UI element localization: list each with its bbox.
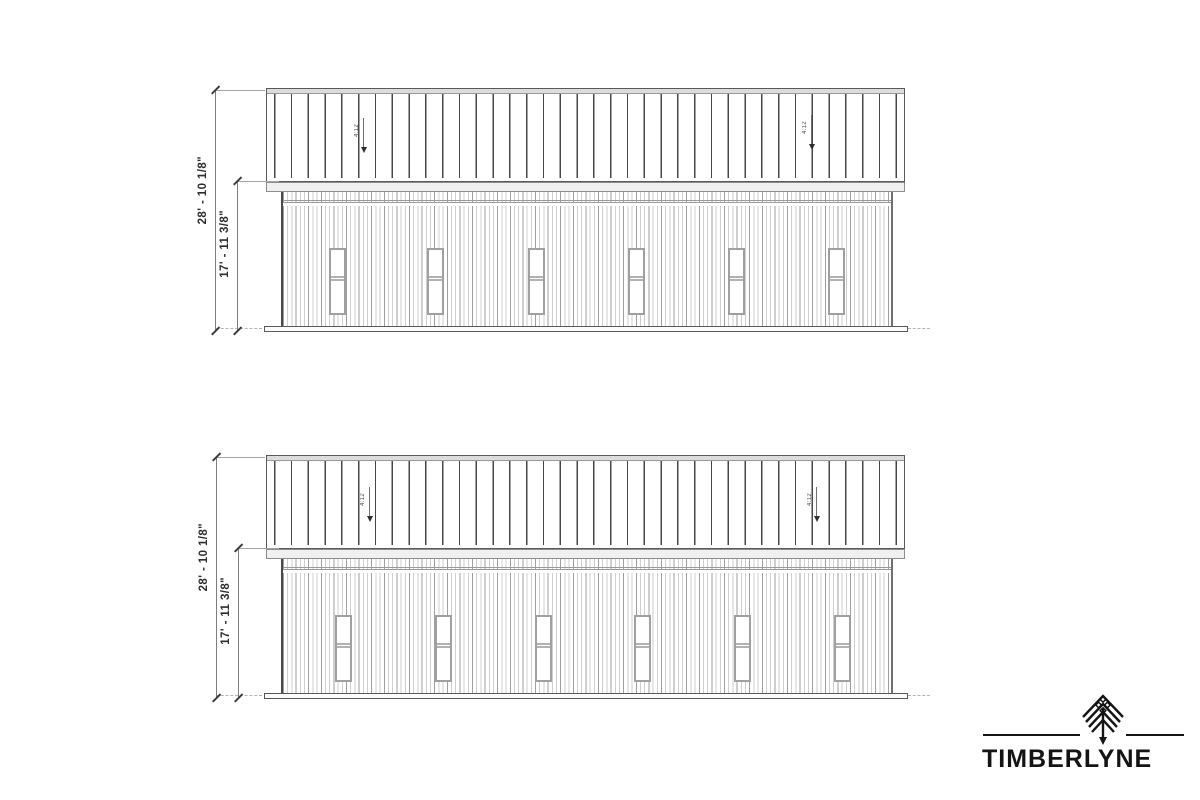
dimension-line-wall (237, 181, 238, 331)
window (628, 248, 645, 315)
window-sash-divider (636, 643, 649, 648)
window (329, 248, 346, 315)
wall-trim-band (283, 559, 891, 570)
window-sash-divider (836, 643, 849, 648)
extension-line-eave (237, 181, 279, 182)
window (734, 615, 751, 682)
eave-fascia (266, 549, 905, 559)
window (834, 615, 851, 682)
extension-line-eave (238, 548, 279, 549)
slope-text: 4:12 (354, 124, 360, 137)
dimension-line-overall (215, 90, 216, 331)
extension-line-roof-peak (215, 90, 265, 91)
window (634, 615, 651, 682)
window-sash-divider (730, 276, 743, 281)
window (728, 248, 745, 315)
slope-arrow-line (363, 118, 364, 148)
grade-line-right (908, 328, 930, 329)
window (828, 248, 845, 315)
slope-text: 4:12 (807, 493, 813, 506)
window-sash-divider (429, 276, 442, 281)
elevation-view-lower: 28' - 10 1/8" 17' - 11 3/8" 4:12 4:12 (0, 455, 1200, 715)
logo-wordmark: TIMBERLYNE (982, 745, 1152, 774)
dimension-tick (211, 326, 220, 335)
window-sash-divider (437, 643, 450, 648)
window-sash-divider (830, 276, 843, 281)
slope-arrow-line (816, 487, 817, 517)
window-sash-divider (630, 276, 643, 281)
wall-trim-band (283, 192, 891, 203)
dimension-text-overall: 28' - 10 1/8" (198, 523, 210, 591)
logo-rule-left (983, 734, 1080, 736)
slope-arrow-head (367, 516, 373, 522)
window-sash-divider (337, 643, 350, 648)
foundation-slab (264, 693, 908, 699)
slope-arrow-head (809, 144, 815, 150)
slope-text: 4:12 (360, 493, 366, 506)
wall-main-siding (283, 573, 891, 693)
window (335, 615, 352, 682)
dimension-text-wall: 17' - 11 3/8" (220, 577, 232, 645)
eave-fascia (266, 182, 905, 192)
window (535, 615, 552, 682)
slope-arrow-head (361, 147, 367, 153)
dimension-line-wall (238, 548, 239, 698)
grade-line-right (908, 695, 930, 696)
slope-arrow-head (814, 516, 820, 522)
slope-arrow-line (369, 487, 370, 517)
dimension-text-wall: 17' - 11 3/8" (219, 210, 231, 278)
dimension-text-overall: 28' - 10 1/8" (197, 156, 209, 224)
company-logo: TIMBERLYNE (980, 688, 1190, 778)
elevation-view-upper: 28' - 10 1/8" 17' - 11 3/8" 4:12 4:12 (0, 88, 1200, 348)
drawing-sheet: { "sheet": { "background": "#ffffff", "l… (0, 0, 1200, 800)
window-sash-divider (530, 276, 543, 281)
extension-line-roof-peak (216, 457, 265, 458)
window-sash-divider (736, 643, 749, 648)
wall-siding (281, 192, 893, 326)
pine-tree-icon (1080, 692, 1126, 748)
logo-rule-right (1126, 734, 1184, 736)
foundation-slab (264, 326, 908, 332)
slope-text: 4:12 (802, 121, 808, 134)
dimension-tick (212, 693, 221, 702)
window-sash-divider (537, 643, 550, 648)
window (427, 248, 444, 315)
wall-siding (281, 559, 893, 693)
roof-panel-area (266, 88, 905, 182)
slope-arrow-line (811, 115, 812, 145)
wall-main-siding (283, 206, 891, 326)
window-sash-divider (331, 276, 344, 281)
window (528, 248, 545, 315)
window (435, 615, 452, 682)
dimension-line-overall (216, 457, 217, 698)
